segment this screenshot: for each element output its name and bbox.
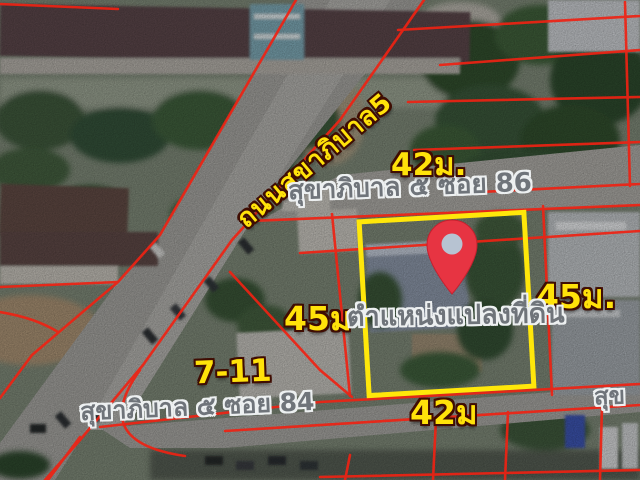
dimension-left-label: 45ม: [284, 301, 352, 337]
landmark-7-11-label: 7-11: [193, 354, 272, 391]
satellite-map-image: ถนนสุขาภิบาล5 สุขาภิบาล ๕ ซอย 86 42ม. 45…: [0, 0, 640, 480]
dimension-bottom-label: 42ม: [410, 395, 478, 431]
dimension-top-label: 42ม.: [391, 148, 466, 182]
location-pin-icon: [424, 218, 480, 298]
plot-location-label: ตำแหน่งแปลงที่ดิน: [347, 299, 565, 332]
street-label-right-partial: สุข: [594, 382, 626, 409]
